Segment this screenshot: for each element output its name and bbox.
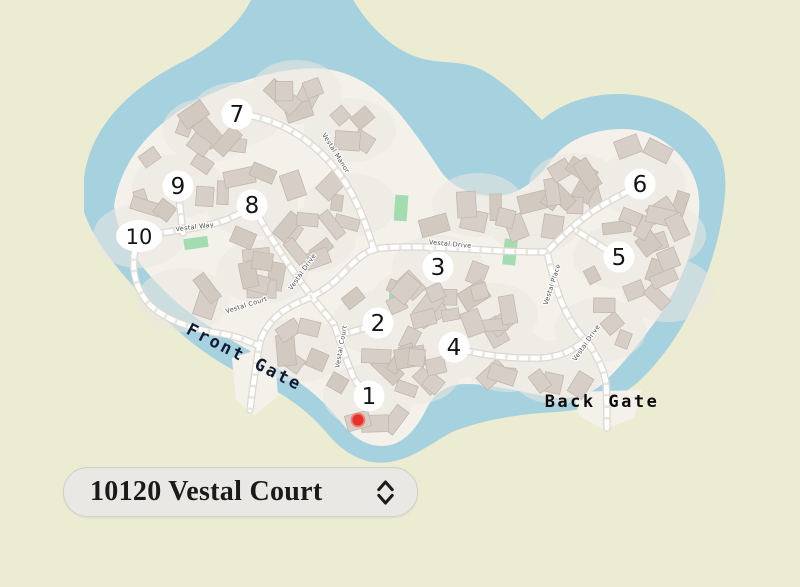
lot-marker-5[interactable]: 5 (604, 242, 635, 273)
lot-marker-number: 4 (447, 335, 462, 361)
building (408, 348, 426, 367)
lot-marker-number: 6 (633, 172, 648, 198)
building (275, 81, 293, 101)
building (495, 207, 516, 228)
lot-marker-number: 1 (362, 384, 377, 410)
selected-location-marker (352, 414, 365, 427)
address-selector-value: 10120 Vestal Court (90, 476, 323, 508)
building (593, 298, 615, 313)
lot-marker-3[interactable]: 3 (423, 252, 454, 283)
lot-marker-1[interactable]: 1 (354, 381, 385, 412)
lot-marker-7[interactable]: 7 (222, 99, 253, 130)
lot-marker-number: 3 (431, 255, 446, 281)
back-gate-label: Back Gate (545, 392, 660, 412)
building (196, 186, 215, 207)
building (251, 251, 273, 271)
address-selector[interactable]: 10120 Vestal Court (63, 467, 418, 517)
lot-marker-6[interactable]: 6 (625, 169, 656, 200)
lot-marker-number: 5 (612, 245, 627, 271)
up-down-chevron-icon (374, 478, 397, 507)
building (456, 191, 477, 218)
lot-marker-10[interactable]: 10 (116, 220, 162, 252)
lot-marker-number: 10 (126, 225, 153, 249)
lot-marker-4[interactable]: 4 (439, 332, 470, 363)
lot-marker-9[interactable]: 9 (163, 171, 194, 202)
lot-marker-8[interactable]: 8 (237, 190, 268, 221)
building (361, 349, 391, 364)
app-window: Vestal ManorVestal WayVestal DriveVestal… (0, 0, 800, 587)
lot-marker-2[interactable]: 2 (363, 308, 394, 339)
lot-marker-number: 7 (230, 102, 245, 128)
lot-marker-number: 8 (245, 193, 260, 219)
lot-marker-number: 9 (171, 174, 186, 200)
lot-marker-number: 2 (371, 311, 386, 337)
green-space (394, 195, 409, 222)
building (296, 212, 318, 227)
